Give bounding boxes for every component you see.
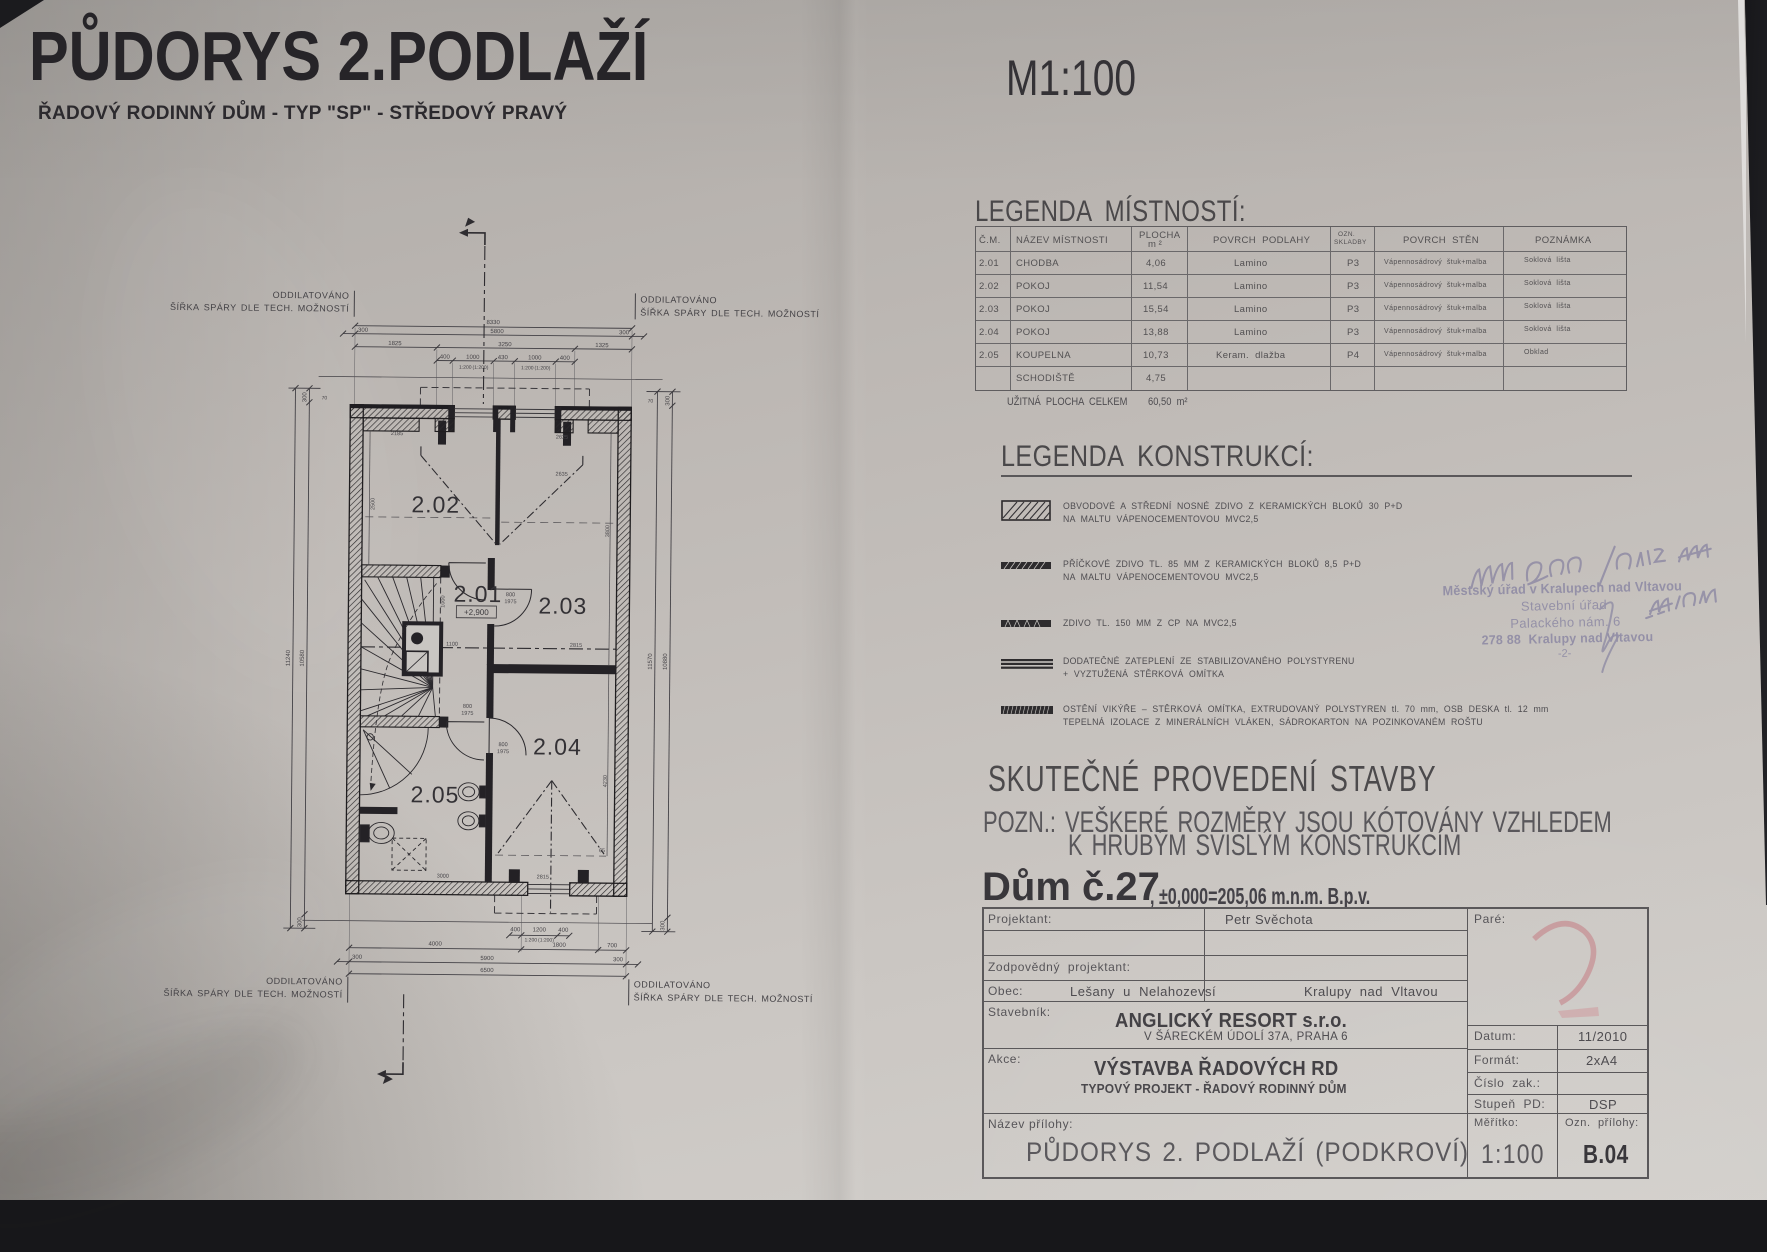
svg-text:6500: 6500 bbox=[480, 968, 494, 974]
svg-text:2815: 2815 bbox=[570, 643, 582, 649]
svg-text:1200: 1200 bbox=[533, 927, 547, 933]
svg-text:800: 800 bbox=[506, 592, 515, 598]
svg-text:1000: 1000 bbox=[440, 595, 446, 607]
svg-text:3250: 3250 bbox=[498, 342, 512, 348]
svg-text:65: 65 bbox=[599, 848, 605, 854]
svg-text:400: 400 bbox=[510, 927, 521, 933]
svg-text:300: 300 bbox=[352, 955, 363, 961]
svg-text:10580: 10580 bbox=[300, 649, 306, 666]
svg-text:3800: 3800 bbox=[605, 525, 611, 537]
svg-text:700: 700 bbox=[607, 943, 618, 949]
svg-text:2500: 2500 bbox=[370, 498, 376, 510]
svg-text:ODDILATOVÁNO: ODDILATOVÁNO bbox=[640, 294, 717, 305]
svg-text:1:200 (1:200): 1:200 (1:200) bbox=[521, 365, 551, 371]
svg-text:1325: 1325 bbox=[595, 343, 609, 349]
svg-text:300: 300 bbox=[665, 395, 671, 406]
svg-text:2.05: 2.05 bbox=[410, 781, 459, 807]
svg-text:ŠÍŘKA SPÁRY DLE TECH. MOŽN: ŠÍŘKA SPÁRY DLE TECH. MOŽNOSTÍ bbox=[170, 302, 349, 314]
svg-text:2815: 2815 bbox=[537, 874, 549, 880]
svg-text:1825: 1825 bbox=[388, 341, 402, 347]
svg-text:2625: 2625 bbox=[556, 435, 568, 441]
svg-text:1975: 1975 bbox=[497, 749, 509, 755]
svg-text:800: 800 bbox=[463, 704, 472, 710]
svg-text:ODDILATOVÁNO: ODDILATOVÁNO bbox=[273, 290, 350, 301]
svg-text:1800: 1800 bbox=[552, 943, 566, 949]
svg-text:5900: 5900 bbox=[480, 956, 494, 962]
svg-text:300: 300 bbox=[619, 330, 630, 336]
svg-text:ŠÍŘKA SPÁRY DLE TECH. MOŽN: ŠÍŘKA SPÁRY DLE TECH. MOŽNOSTÍ bbox=[634, 992, 813, 1004]
svg-text:2185: 2185 bbox=[391, 431, 403, 437]
svg-text:1000: 1000 bbox=[528, 355, 542, 361]
svg-text:400: 400 bbox=[560, 356, 571, 362]
svg-text:2.01: 2.01 bbox=[453, 581, 502, 607]
svg-text:+2,900: +2,900 bbox=[464, 608, 489, 617]
svg-text:2635: 2635 bbox=[556, 472, 568, 478]
svg-text:10880: 10880 bbox=[663, 653, 669, 670]
svg-text:430: 430 bbox=[498, 355, 509, 361]
svg-text:300: 300 bbox=[302, 392, 308, 403]
svg-text:2.02: 2.02 bbox=[411, 491, 460, 517]
svg-text:300: 300 bbox=[660, 920, 666, 931]
svg-text:300: 300 bbox=[297, 917, 303, 928]
svg-text:800: 800 bbox=[498, 742, 507, 748]
svg-text:1000: 1000 bbox=[466, 355, 480, 361]
svg-text:300: 300 bbox=[358, 328, 369, 334]
svg-text:1:200 (1:200): 1:200 (1:200) bbox=[525, 937, 555, 943]
svg-text:2.04: 2.04 bbox=[533, 733, 582, 759]
svg-text:ODDILATOVÁNO: ODDILATOVÁNO bbox=[266, 976, 343, 987]
svg-text:1:200 (1:200): 1:200 (1:200) bbox=[459, 365, 489, 371]
svg-text:ŠÍŘKA SPÁRY DLE TECH. MOŽN: ŠÍŘKA SPÁRY DLE TECH. MOŽNOSTÍ bbox=[163, 988, 342, 1000]
svg-text:300: 300 bbox=[613, 957, 624, 963]
svg-text:400: 400 bbox=[440, 355, 451, 361]
svg-text:ODDILATOVÁNO: ODDILATOVÁNO bbox=[634, 979, 711, 990]
svg-text:70: 70 bbox=[648, 399, 654, 405]
svg-text:1100: 1100 bbox=[446, 642, 458, 648]
svg-text:1975: 1975 bbox=[504, 599, 516, 605]
svg-text:5800: 5800 bbox=[490, 329, 504, 335]
svg-text:1975: 1975 bbox=[461, 711, 473, 717]
svg-text:70: 70 bbox=[322, 395, 328, 401]
svg-text:11570: 11570 bbox=[648, 653, 654, 670]
svg-text:2.03: 2.03 bbox=[538, 592, 587, 618]
svg-text:11240: 11240 bbox=[286, 649, 292, 666]
svg-text:4000: 4000 bbox=[428, 941, 442, 947]
svg-text:ŠÍŘKA SPÁRY DLE TECH. MOŽN: ŠÍŘKA SPÁRY DLE TECH. MOŽNOSTÍ bbox=[640, 307, 819, 319]
svg-text:8330: 8330 bbox=[486, 320, 500, 326]
svg-text:3000: 3000 bbox=[437, 874, 449, 880]
svg-text:400: 400 bbox=[558, 928, 569, 934]
svg-text:4230: 4230 bbox=[603, 775, 609, 787]
